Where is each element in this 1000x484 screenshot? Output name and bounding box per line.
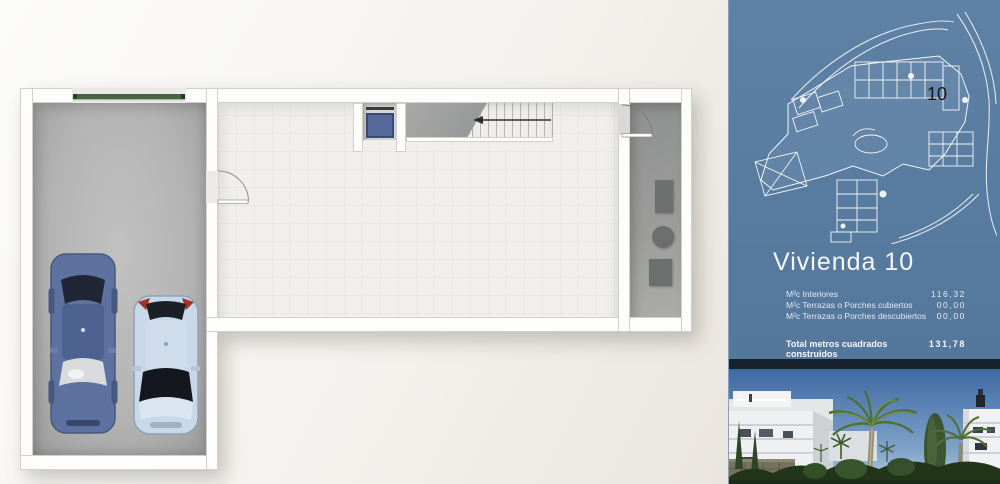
floor-plan: [20, 88, 692, 470]
car-hatchback: [130, 294, 202, 436]
furniture-cabinet: [655, 180, 673, 213]
stair-bottom-wall: [406, 137, 553, 142]
wall-storage-divider: [618, 88, 630, 332]
bush: [887, 458, 915, 476]
area-row-label: M²c Interiores: [786, 289, 838, 300]
wall-garage-bottom: [20, 455, 218, 470]
area-row: M²c Terrazas o Porches cubiertos 00,00: [786, 300, 966, 311]
elevator-wall-left: [353, 103, 363, 152]
ground-shadow: [729, 480, 1000, 484]
area-row-value: 00,00: [937, 300, 966, 311]
furniture-chest: [649, 259, 672, 286]
storage-room-floor: [630, 103, 681, 332]
wall-garage-divider: [206, 88, 218, 470]
area-row-label: M²c Terrazas o Porches descubiertos: [786, 311, 926, 322]
garage-door: [73, 94, 185, 99]
area-rows: M²c Interiores 116,32 M²c Terrazas o Por…: [786, 289, 966, 322]
elevator-wall-right: [396, 103, 406, 152]
brochure-page: 10 Vivienda 10 M²c Interiores 116,32 M²c…: [0, 0, 1000, 484]
total-value: 131,78: [929, 339, 966, 359]
furniture-round-table: [652, 226, 674, 248]
wall-top: [20, 88, 692, 103]
area-row-value: 00,00: [937, 311, 966, 322]
stair-treads: [472, 103, 553, 137]
total-row: Total metros cuadrados construidos 131,7…: [786, 339, 966, 359]
wall-right: [681, 88, 692, 332]
wall-left: [20, 88, 33, 470]
elevator-car: [366, 113, 394, 138]
site-outline: [761, 56, 969, 190]
bush: [835, 459, 867, 479]
unit-10-label: 10: [927, 84, 947, 104]
area-row-label: M²c Terrazas o Porches cubiertos: [786, 300, 912, 311]
area-row: M²c Terrazas o Porches descubiertos 00,0…: [786, 311, 966, 322]
area-row: M²c Interiores 116,32: [786, 289, 966, 300]
bush: [803, 463, 827, 479]
area-row-value: 116,32: [931, 289, 966, 300]
panel-title: Vivienda 10: [773, 248, 914, 277]
car-sedan: [48, 252, 118, 435]
building-photo: [729, 369, 1000, 484]
info-panel: 10 Vivienda 10 M²c Interiores 116,32 M²c…: [728, 0, 1000, 484]
site-plan-map: 10: [733, 4, 997, 244]
elevator-door-line: [366, 107, 394, 110]
photo-divider: [729, 359, 1000, 369]
total-label: Total metros cuadrados construidos: [786, 339, 929, 359]
garage-door-opening: [72, 88, 186, 103]
